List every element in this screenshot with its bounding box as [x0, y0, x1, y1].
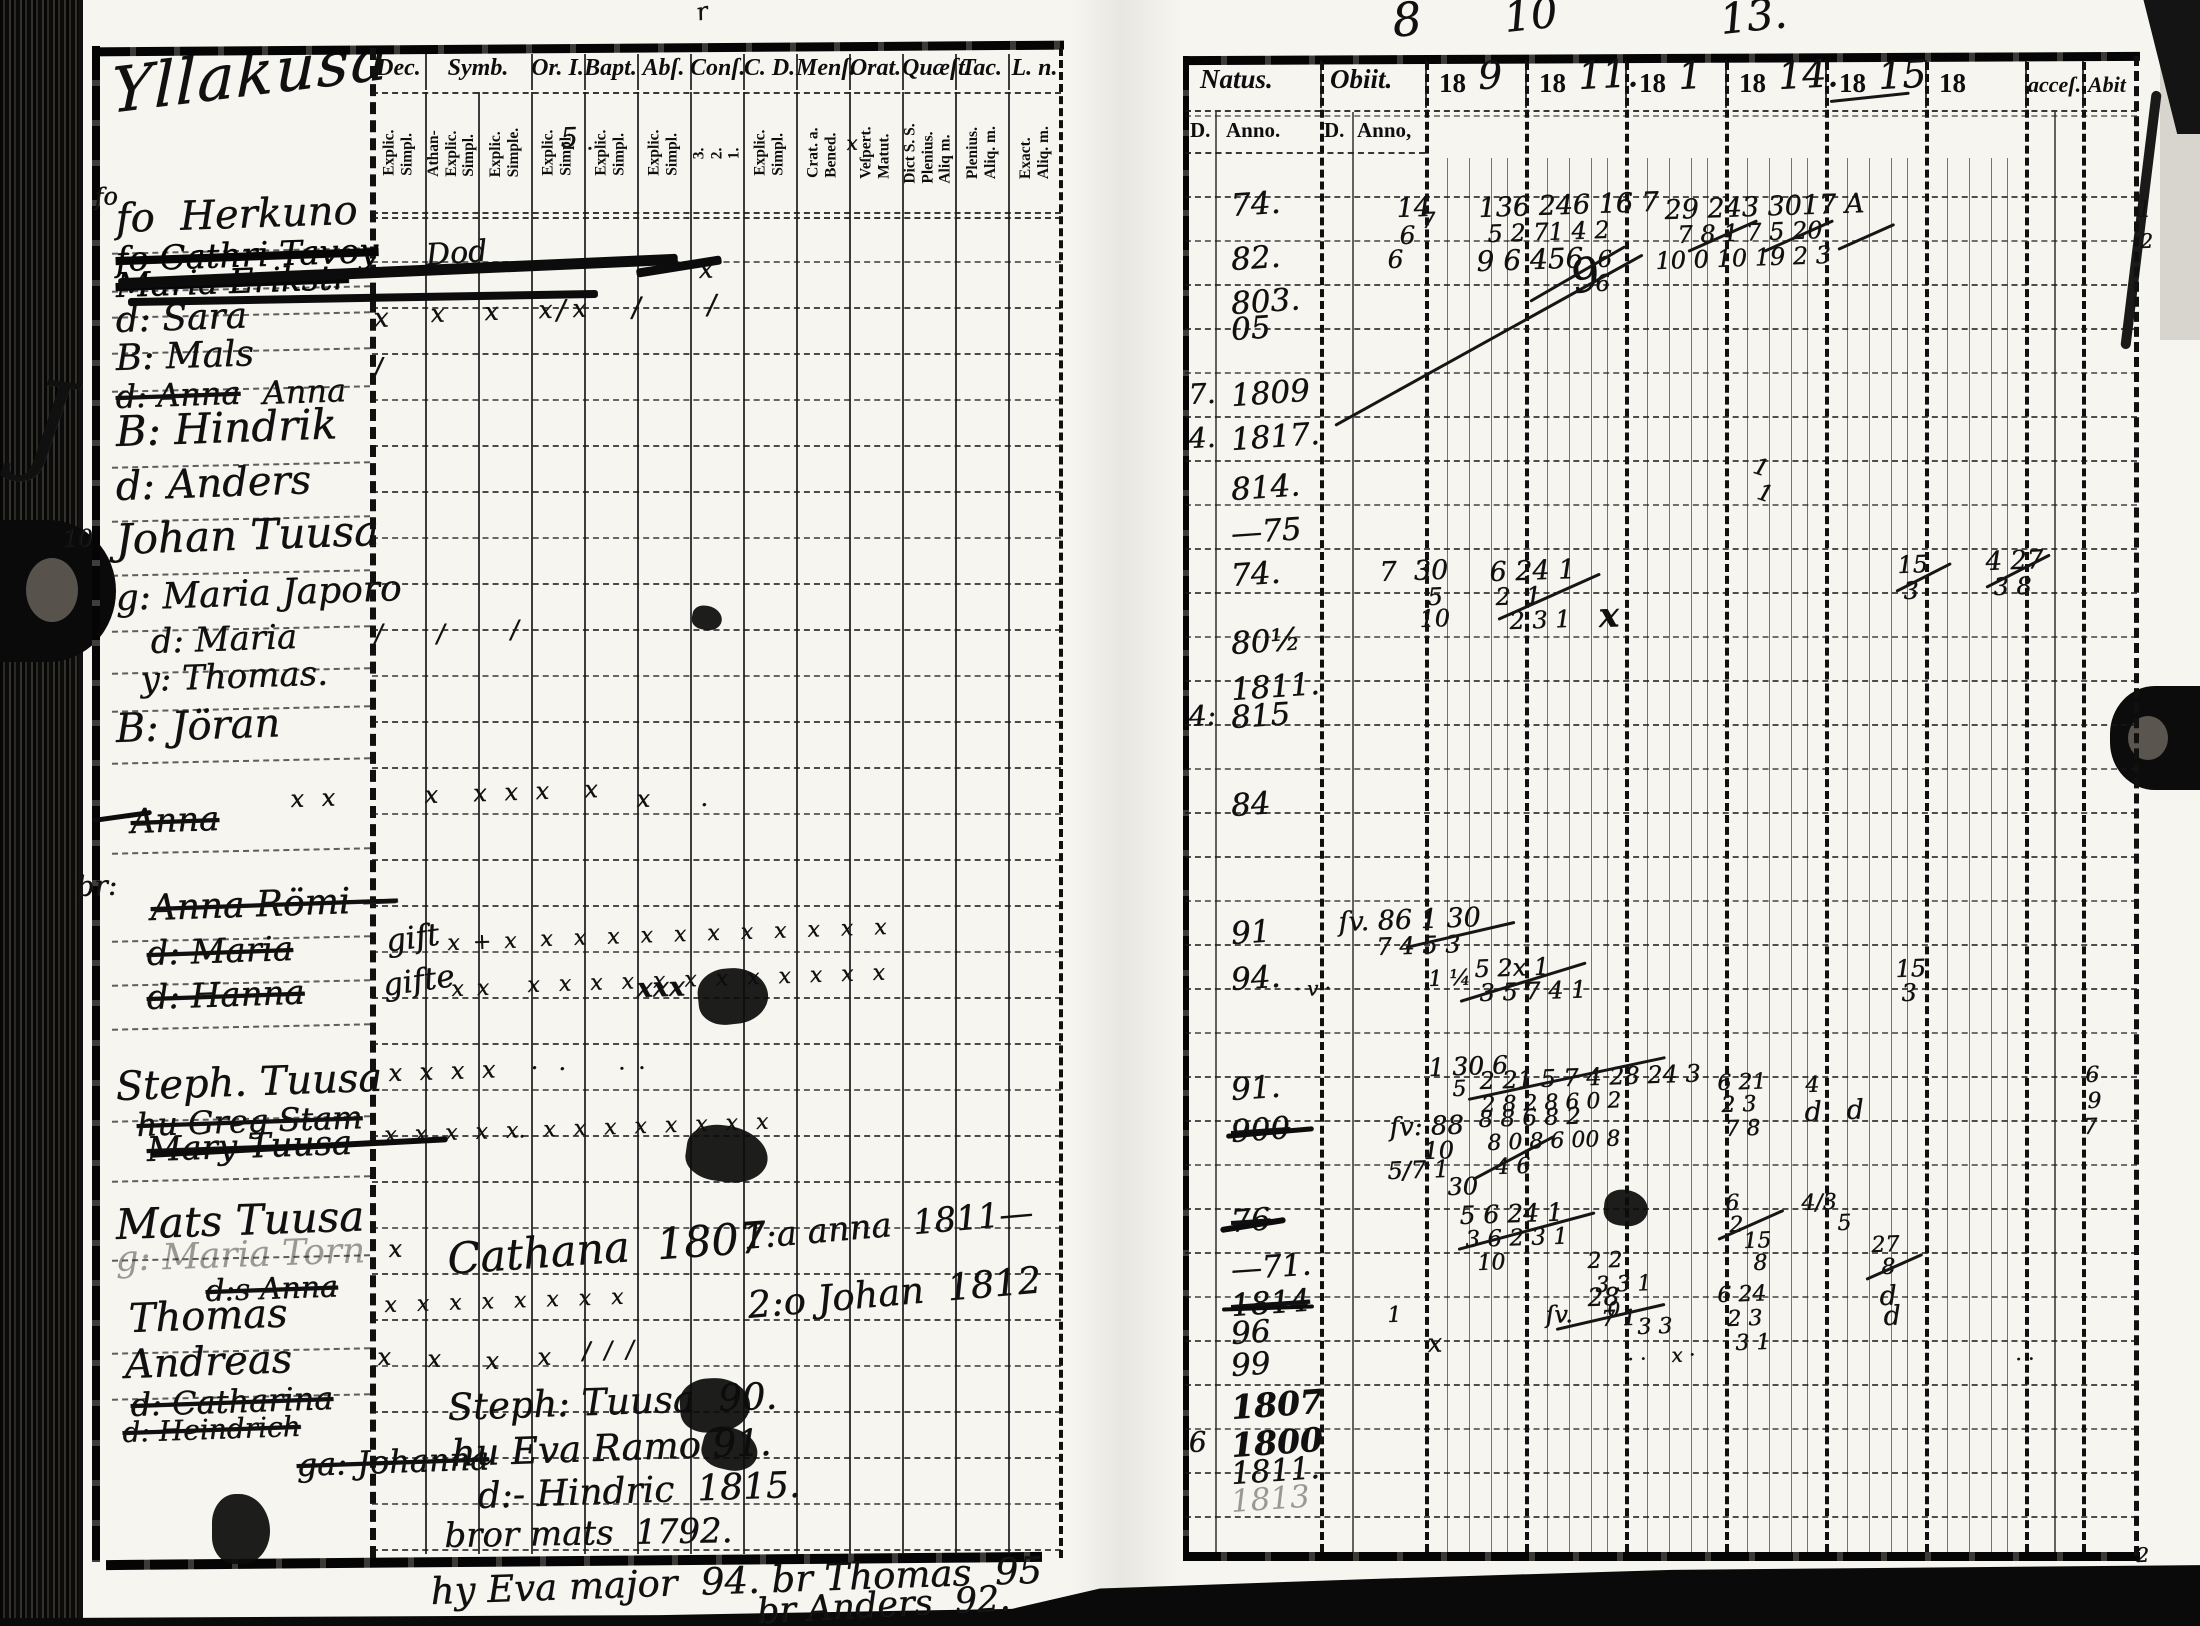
margin-note: br: — [76, 873, 118, 901]
grid-line — [1185, 636, 2137, 638]
handwritten-note: bror mats 1792. — [444, 1515, 733, 1552]
handwritten-name: Johan Tuusa — [115, 511, 380, 560]
header-divider — [1320, 60, 1322, 108]
ink-blob — [212, 1494, 270, 1564]
column-header: Orat. — [849, 56, 902, 80]
handwritten-mark: · v · — [1294, 979, 1331, 999]
handwritten-mark: 1 ¼ — [1428, 969, 1471, 991]
handwritten-mark: ſv. — [1545, 1303, 1573, 1327]
grid-line — [372, 767, 1061, 769]
sub-header-rotated: Explic. Simpl. — [372, 96, 425, 210]
grid-line — [1185, 1120, 2137, 1122]
sub-column-line — [1669, 158, 1670, 1552]
sub-column-line — [1447, 158, 1448, 1552]
grid-line — [372, 445, 1061, 447]
header-rule — [1185, 115, 2137, 117]
column-header: Menſ. — [796, 56, 849, 80]
column-header-natus: Natus. — [1200, 66, 1273, 93]
sub-column-line — [1547, 158, 1548, 1552]
column-line — [743, 92, 745, 1554]
grid-line — [1185, 900, 2137, 902]
sub-column-line — [1947, 158, 1948, 1552]
sub-column-line — [1869, 158, 1870, 1552]
handwritten-mark: gifte — [381, 962, 456, 1001]
handwritten-name: Andreas — [124, 1340, 293, 1384]
column-header-abiit: Abit — [2088, 74, 2126, 96]
year-header-printed: 18 — [1639, 70, 1666, 97]
grid-line — [1185, 1340, 2137, 1342]
handwritten-mark: x — [388, 1238, 402, 1261]
natus-year: 814. — [1230, 471, 1301, 505]
handwritten-mark: x x x x x — [424, 778, 598, 807]
handwritten-mark: x + x — [447, 932, 517, 955]
year-header-printed: 18 — [1539, 70, 1566, 97]
column-line — [902, 92, 904, 1554]
handwritten-mark: / — [510, 618, 519, 642]
grid-line — [1185, 372, 2137, 374]
natus-day: 4. — [1188, 425, 1216, 453]
year-header-written: 11. — [1577, 55, 1639, 94]
handwritten-mark: 6 — [2085, 1066, 2100, 1087]
handwritten-mark: x — [485, 1350, 499, 1373]
column-header: L. n. — [1008, 56, 1061, 80]
natus-year: 94. — [1230, 963, 1281, 996]
natus-year: 74. — [1230, 559, 1281, 592]
column-header: Tac. — [955, 56, 1008, 80]
natus-year: 82. — [1230, 243, 1281, 276]
handwritten-note: 2:o Johan 1812 — [746, 1262, 1043, 1323]
handwritten-mark: 2 3 — [1727, 1309, 1763, 1331]
year-header-printed: 18 — [1939, 70, 1966, 97]
grid-line — [1185, 812, 2137, 814]
handwritten-mark: x x x x · — [388, 1057, 539, 1085]
grid-line — [1185, 1164, 2137, 1166]
sub-header-rotated: Exact. Aliq. m. — [1008, 96, 1061, 210]
year-header-written: 14. — [1777, 55, 1839, 94]
grid-line — [1185, 416, 2137, 418]
handwritten-mark: 1 — [2137, 199, 2152, 221]
handwritten-mark: x · — [1671, 1345, 1696, 1365]
column-header: C. D. — [743, 56, 796, 80]
handwritten-mark: 5/7 1 — [1387, 1158, 1449, 1183]
handwritten-mark: gift — [384, 921, 441, 958]
handwritten-name: d: Heindrich — [122, 1414, 301, 1447]
grid-line — [1185, 196, 2137, 198]
handwritten-name: Anna — [130, 803, 220, 838]
grid-line — [1185, 460, 2137, 462]
handwritten-mark: 5 — [1837, 1214, 1852, 1235]
sub-header-rotated: Explic. Simple. — [478, 96, 531, 210]
header-divider — [1525, 60, 1527, 108]
subheader-natus-year: Anno. — [1226, 120, 1280, 141]
header-divider — [2025, 60, 2027, 108]
handwritten-mark: 3 1 — [1735, 1333, 1771, 1355]
handwritten-mark: / — [436, 622, 445, 646]
grid-line — [372, 905, 1061, 907]
natus-year: 1817. — [1230, 420, 1321, 456]
grid-line — [1185, 1384, 2137, 1386]
grid-line — [1185, 1208, 2137, 1210]
margin-note: 10 — [62, 527, 93, 551]
grid-line — [372, 1089, 1061, 1091]
page-gutter — [1072, 0, 1182, 1626]
page-number-written: 8 — [1390, 0, 1424, 43]
column-header-obiit: Obiit. — [1330, 66, 1392, 93]
sub-header-rotated: Explic. Simpl. — [637, 96, 690, 210]
grid-line — [1185, 856, 2137, 858]
sub-column-line — [1647, 158, 1648, 1552]
header-divider — [1425, 60, 1427, 108]
grid-line — [372, 583, 1061, 585]
sub-column-line — [1891, 158, 1892, 1552]
grid-line — [1185, 1428, 2137, 1430]
handwritten-mark: d — [1846, 1097, 1864, 1123]
handwritten-name: d: Maria — [150, 621, 298, 658]
handwritten-mark: x — [1427, 1331, 1443, 1356]
ink-stroke — [1334, 254, 1643, 427]
grid-line — [1185, 240, 2137, 242]
grid-line — [1185, 768, 2137, 770]
sub-column-line — [1907, 158, 1908, 1552]
handwritten-mark: 5 — [1452, 1080, 1467, 1101]
handwritten-mark: x x — [290, 786, 335, 810]
handwritten-mark: x — [373, 305, 389, 331]
grid-line — [1185, 1516, 2137, 1518]
grid-line — [372, 353, 1061, 355]
handwritten-mark: 10 — [1477, 1253, 1506, 1275]
natus-year: 74. — [1230, 189, 1281, 222]
sub-column-line — [1991, 158, 1992, 1552]
name-separator-line — [112, 1023, 370, 1030]
handwritten-mark: 6 — [1387, 247, 1404, 271]
natus-year: 1809 — [1230, 376, 1311, 411]
handwritten-mark: 7 — [1421, 212, 1436, 233]
handwritten-mark: x — [846, 134, 858, 153]
handwritten-mark: · · — [1627, 1349, 1647, 1369]
table-border-right — [1059, 48, 1063, 1558]
natus-year: —75 — [1230, 515, 1302, 549]
handwritten-mark: 7 — [2083, 1118, 2098, 1139]
handwritten-name: g: Maria Japoro — [115, 572, 402, 616]
handwritten-note: d:- Hindric 1815. — [477, 1469, 801, 1514]
page-number-written: 13. — [1718, 0, 1789, 40]
handwritten-mark: x — [636, 788, 650, 811]
handwritten-mark: 8 — [1753, 1254, 1768, 1275]
handwritten-mark: 2 3 — [1721, 1095, 1757, 1117]
table-border-left — [1183, 56, 1189, 1556]
book-clasp-right-icon — [2110, 686, 2200, 790]
handwritten-mark: 15 — [1897, 553, 1928, 577]
year-header-written: 15 — [1877, 55, 1927, 94]
handwritten-mark: 3 — [1901, 981, 1917, 1004]
handwritten-mark: x x — [451, 979, 490, 1001]
grid-line — [372, 537, 1061, 539]
grid-line — [1185, 1032, 2137, 1034]
handwritten-mark: 10 0 10 19 2 3 — [1655, 244, 1831, 273]
natus-day: 4: — [1188, 703, 1217, 731]
table-border-top — [1183, 52, 2140, 65]
header-rule — [372, 217, 1061, 219]
header-divider — [1725, 60, 1727, 108]
year-header-printed: 18 — [1439, 70, 1466, 97]
handwritten-name: B: Hindrik — [115, 404, 338, 452]
grid-line — [372, 675, 1061, 677]
grid-line — [372, 491, 1061, 493]
natus-year: 815 — [1230, 700, 1291, 733]
natus-year: —71. — [1230, 1250, 1312, 1285]
book-scan-spread: Yllakusa Natus. Obiit. D. Anno. D. Anno,… — [0, 0, 2200, 1626]
grid-line — [372, 1043, 1061, 1045]
subheader-obiit-year: Anno, — [1357, 120, 1411, 141]
handwritten-mark: 1 — [1387, 1306, 1402, 1327]
handwritten-mark: 2 — [2136, 1546, 2149, 1565]
handwritten-mark: xxx — [636, 974, 685, 1001]
handwritten-mark: 27 — [1871, 1235, 1900, 1257]
grid-line — [1185, 328, 2137, 330]
grid-line — [372, 1365, 1061, 1367]
column-line — [955, 92, 957, 1554]
grid-line — [372, 1319, 1061, 1321]
column-header: Abſ. — [637, 56, 690, 80]
sub-header-rotated: Athan- Explic. Simpl. — [425, 96, 478, 210]
natus-year: 1813 — [1230, 1482, 1311, 1517]
column-line — [425, 92, 427, 1554]
ink-blob — [1602, 1188, 1650, 1228]
natus-year: 99 — [1230, 1349, 1271, 1381]
handwritten-name: fo Herkuno — [115, 192, 358, 238]
name-separator-line — [112, 847, 370, 854]
sub-header-rotated: Crat. a. Bened. — [796, 96, 849, 210]
handwritten-mark: 4 — [1805, 1076, 1820, 1097]
handwritten-mark: 8 0 8 6 00 8 — [1487, 1129, 1621, 1155]
handwritten-mark: 6 24 — [1717, 1284, 1767, 1307]
natus-year: 1807 — [1230, 1386, 1324, 1424]
handwritten-mark: x x x x x x x x x x x — [540, 918, 887, 951]
year-header-printed: 18 — [1739, 70, 1766, 97]
table-border-left — [92, 46, 100, 1562]
column-header-accessit: acceſ. — [2028, 74, 2081, 96]
handwritten-name: Anna Römi — — [150, 883, 398, 926]
header-rule — [1185, 152, 1425, 154]
column-line — [796, 92, 798, 1554]
subheader-natus-day: D. — [1190, 120, 1210, 141]
table-border-bottom — [1183, 1552, 2140, 1561]
grid-line — [1185, 724, 2137, 726]
sub-column-line — [1707, 158, 1708, 1552]
handwritten-name: d: Maria — [146, 933, 294, 970]
handwritten-mark: · — [700, 794, 708, 817]
natus-year: 91. — [1230, 1073, 1281, 1106]
natus-year: 91 — [1230, 917, 1271, 949]
column-header: Conſ. — [690, 56, 743, 80]
margin-note: fo — [94, 185, 118, 209]
name-separator-line — [112, 757, 370, 764]
sub-column-line — [1807, 158, 1808, 1552]
sub-column-line — [1791, 158, 1792, 1552]
handwritten-name: y: Thomas. — [140, 657, 328, 696]
handwritten-mark: x — [1598, 599, 1619, 632]
header-divider — [2082, 60, 2084, 108]
handwritten-mark: d — [1804, 1099, 1822, 1125]
grid-line — [372, 859, 1061, 861]
handwritten-mark: x — [377, 1346, 391, 1369]
handwritten-mark: x x x x x x x x — [384, 1288, 624, 1317]
handwritten-mark: 15 — [1743, 1231, 1772, 1253]
sub-header-rotated: Explic. Simpl. — [743, 96, 796, 210]
year-header-written: 1 — [1677, 57, 1703, 94]
handwritten-mark: 10 — [1419, 607, 1450, 631]
grid-line — [1185, 680, 2137, 682]
natus-year: 80½ — [1230, 625, 1301, 659]
handwritten-mark: 2 — [2140, 232, 2153, 251]
handwritten-mark: r — [694, 0, 710, 24]
handwritten-mark: 7 8 — [1725, 1119, 1761, 1141]
natus-day: 7. — [1188, 381, 1216, 409]
name-separator-line — [112, 1175, 370, 1182]
handwritten-mark: 5 — [560, 125, 578, 151]
year-header-written: 9 — [1477, 57, 1503, 94]
column-line — [1008, 92, 1010, 1554]
handwritten-mark: x — [427, 1348, 441, 1371]
handwritten-mark: 15 — [1895, 957, 1926, 981]
sub-column-line — [2007, 158, 2008, 1552]
table-border-right — [2134, 56, 2139, 1556]
header-rule — [1185, 110, 2137, 112]
handwritten-mark: / / / — [582, 1338, 634, 1363]
handwritten-name: d: Hanna — [146, 976, 305, 1014]
sub-column-line — [1569, 158, 1570, 1552]
grid-line — [1185, 504, 2137, 506]
sub-column-line — [1469, 158, 1470, 1552]
sub-header-rotated: 3. 2. 1. — [690, 96, 743, 210]
page-title: Yllakusa — [111, 28, 390, 122]
sub-column-line — [1591, 158, 1592, 1552]
sub-header-rotated: Plenius. Aliq. m. — [955, 96, 1008, 210]
handwritten-name: B: Jöran — [115, 704, 281, 748]
subheader-obiit-day: D. — [1324, 120, 1344, 141]
handwritten-mark: · · — [2015, 1349, 2035, 1369]
year-header-printed: 18 — [1839, 70, 1866, 97]
handwritten-name: Thomas — [128, 1294, 288, 1338]
handwritten-mark: 4 6 — [1495, 1157, 1531, 1179]
grid-line — [1185, 1472, 2137, 1474]
grid-line — [1185, 284, 2137, 286]
handwritten-mark: / — [373, 356, 383, 382]
handwritten-mark: 3 6 2 3 1 — [1465, 1226, 1568, 1251]
handwritten-mark: 4/3 — [1801, 1193, 1837, 1215]
sub-column-line — [1607, 158, 1608, 1552]
sub-column-line — [1847, 158, 1848, 1552]
sub-column-line — [1969, 158, 1970, 1552]
natus-year: 84 — [1230, 789, 1271, 821]
handwritten-note: br Anders 92. — [756, 1583, 1011, 1626]
column-header: Symb. — [425, 56, 531, 80]
sub-column-line — [1491, 158, 1492, 1552]
handwritten-mark: 7 30 — [1379, 558, 1449, 586]
book-binding — [0, 0, 83, 1626]
handwritten-mark: x — [537, 1346, 551, 1369]
handwritten-note: 1:a anna 1811— — [742, 1197, 1034, 1255]
header-rule — [372, 92, 1061, 94]
column-header: Bapt. — [584, 56, 637, 80]
page-number-written: 10 — [1502, 0, 1559, 38]
grid-line — [1185, 1296, 2137, 1298]
grid-line — [372, 399, 1061, 401]
handwritten-mark: / — [374, 622, 383, 646]
handwritten-name: B: Mals — [115, 337, 254, 376]
header-rule — [372, 212, 1061, 214]
handwritten-mark: 3 3 — [1637, 1317, 1673, 1339]
handwritten-mark: 2 2 — [1587, 1251, 1623, 1273]
column-header: Or. I. — [531, 56, 584, 80]
grid-line — [372, 629, 1061, 631]
column-line — [849, 92, 851, 1554]
grid-line — [372, 721, 1061, 723]
handwritten-name: d: Anders — [115, 461, 312, 506]
column-header: Quæſt. — [902, 56, 955, 80]
sub-header-rotated: Dict S. S. Plenius. Aliq m. — [902, 96, 955, 210]
sub-column-line — [1507, 158, 1508, 1552]
natus-day: 6 — [1188, 1429, 1207, 1456]
handwritten-mark: · · — [618, 1059, 646, 1081]
column-header: Dec. — [372, 56, 425, 80]
grid-line — [372, 1181, 1061, 1183]
handwritten-mark: 9 — [2087, 1092, 2102, 1113]
handwritten-mark: · — [586, 140, 594, 161]
handwritten-mark: d — [1883, 1303, 1901, 1329]
natus-year: 05 — [1230, 313, 1271, 345]
grid-line — [372, 813, 1061, 815]
handwritten-mark: · — [558, 1058, 566, 1081]
grid-line — [1185, 944, 2137, 946]
grid-line — [1185, 1252, 2137, 1254]
